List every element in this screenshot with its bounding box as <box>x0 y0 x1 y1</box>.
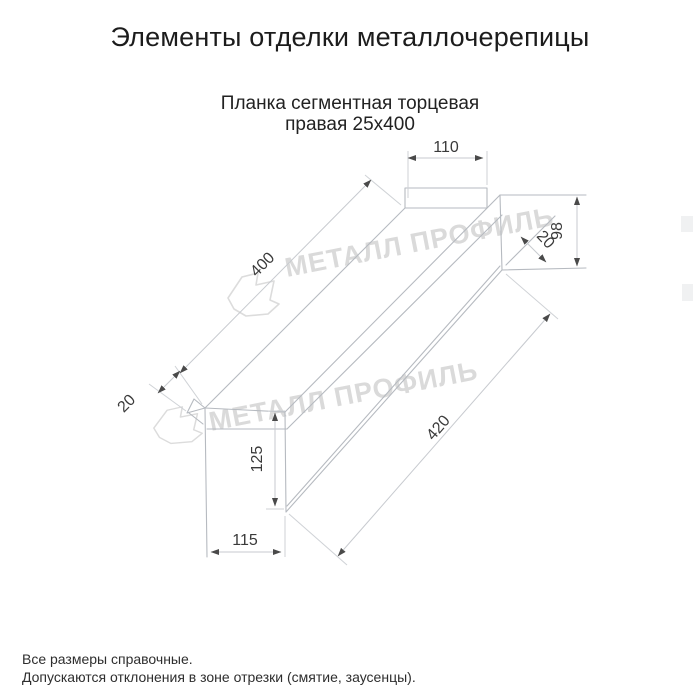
dim-label-420: 420 <box>423 412 453 443</box>
dim-label-110: 110 <box>433 139 459 156</box>
dim-line-400 <box>180 180 371 373</box>
ext-400-upper <box>365 175 401 205</box>
dim-label-20-left: 20 <box>115 391 140 416</box>
ext-20-left <box>149 384 186 411</box>
dim-label-115: 115 <box>232 532 258 549</box>
footnotes: Все размеры справочные. Допускаются откл… <box>22 650 416 686</box>
ext-420-lower <box>289 514 347 565</box>
metall-profil-logo-icon <box>228 273 279 316</box>
dim-label-125: 125 <box>249 446 266 473</box>
watermark-text: МЕТАЛЛ ПРОФИЛЬ <box>282 201 556 283</box>
ext-420-upper <box>506 274 558 319</box>
dim-label-400: 400 <box>247 249 278 280</box>
catalog-drawing-page: Элементы отделки металлочерепицы Планка … <box>0 0 700 700</box>
technical-drawing: МЕТАЛЛ ПРОФИЛЬ МЕТАЛЛ ПРОФИЛЬ <box>0 0 700 700</box>
left-end-tab <box>187 399 205 413</box>
dim-line-20-left <box>158 371 180 393</box>
right-edge-artifacts <box>681 216 693 301</box>
footnote-deviations: Допускаются отклонения в зоне отрезки (с… <box>22 668 416 686</box>
right-cap-bottom-edge <box>502 268 586 270</box>
footnote-reference-sizes: Все размеры справочные. <box>22 650 416 668</box>
dimension-labels: 110 98 20 400 20 125 115 420 <box>115 139 566 549</box>
metall-profil-logo-icon <box>154 407 202 444</box>
left-front-edge <box>285 412 286 512</box>
left-vertical-edge <box>205 408 207 557</box>
watermark-upper: МЕТАЛЛ ПРОФИЛЬ <box>228 201 556 316</box>
dim-line-420 <box>338 314 550 556</box>
end-cut-face <box>405 188 487 208</box>
